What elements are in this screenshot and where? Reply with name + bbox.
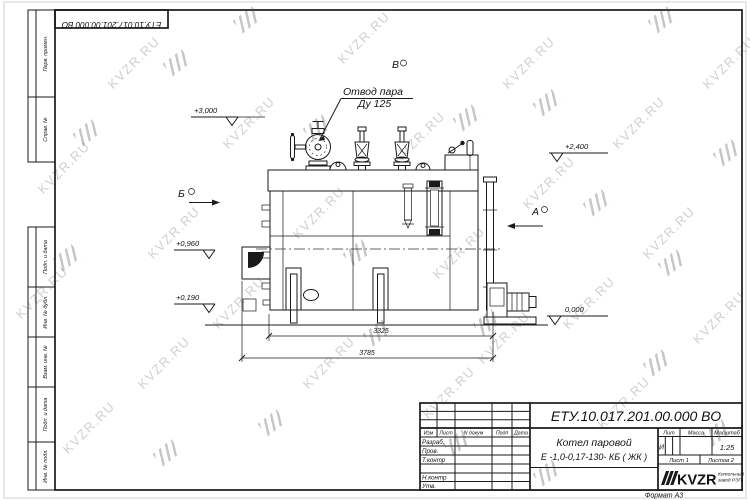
- top-stamp-number: ЕТУ.10.017.201.00.000 ВО: [61, 20, 161, 29]
- margin-label: Инв. № подл.: [43, 449, 49, 482]
- massa-label: Масса: [688, 431, 704, 437]
- lit-label: Лит: [662, 431, 675, 437]
- callout-text-line1: Отвод пара: [343, 86, 403, 98]
- sheets-info: Листов 2: [707, 458, 735, 464]
- dimension-inner: 3325: [373, 328, 389, 335]
- view-label-b: Б: [178, 188, 220, 206]
- dimension-lines: 3325 3785: [239, 281, 496, 362]
- margin-label: Подп. и дата: [43, 240, 49, 274]
- support-legs: [286, 268, 388, 323]
- margin-label: Перв. примен.: [43, 36, 49, 72]
- dimension-outer: 3785: [359, 350, 375, 357]
- steam-valve: [291, 122, 331, 171]
- margin-label: Взам. инв. №: [43, 345, 49, 379]
- elevation-3000: +3,000: [191, 106, 265, 126]
- burner-box: [242, 247, 270, 311]
- title-doc-number: ЕТУ.10.017.201.00.000 ВО: [551, 408, 721, 424]
- callout-text-line2: Ду 125: [357, 98, 391, 110]
- margin-label: Инв. № дубл.: [43, 295, 49, 328]
- sheet-info: Лист 1: [668, 458, 689, 464]
- title-block: ЕТУ.10.017.201.00.000 ВО Котел паровой Е…: [420, 403, 744, 500]
- elevation-0960: +0,960: [174, 239, 215, 259]
- row-razrab: Разраб.: [422, 439, 444, 446]
- row-tkontr: Т.контр: [422, 457, 446, 464]
- col-izm: Изм: [424, 431, 434, 437]
- drum-dome-2: [416, 163, 430, 170]
- margin-label: Справ. №: [43, 117, 49, 142]
- view-label-a: А: [507, 206, 548, 229]
- svg-text:Б: Б: [178, 188, 185, 200]
- svg-text:А: А: [531, 206, 539, 218]
- view-label-v: В: [392, 59, 407, 71]
- row-prov: Пров.: [422, 448, 438, 455]
- svg-text:+0,190: +0,190: [176, 293, 200, 302]
- logo-sub-line1: Котельный: [718, 471, 744, 478]
- product-name-line1: Котел паровой: [556, 437, 631, 449]
- format-label: Формат А3: [645, 493, 683, 500]
- col-data: Дата: [513, 431, 528, 437]
- col-ndoc: N докум: [464, 431, 484, 437]
- callout-steam-outlet: Отвод пара Ду 125: [318, 86, 413, 141]
- margin-label: Подп. и дата: [43, 398, 49, 432]
- safety-valve-2: [394, 127, 410, 170]
- sight-glass: [304, 290, 319, 301]
- water-gauge-column: [425, 181, 444, 235]
- svg-text:0,000: 0,000: [565, 305, 585, 314]
- elevation-0190: +0,190: [174, 293, 215, 313]
- drawing-canvas: ЕТУ.10.017.201.00.000 ВО Перв. примен. С…: [0, 0, 750, 500]
- logo-sub-line2: завод РЭП: [717, 478, 742, 484]
- col-list: Лист: [438, 431, 453, 437]
- rear-fittings: [445, 141, 478, 171]
- drum-dome-1: [330, 162, 346, 170]
- fan-unit: [484, 283, 536, 324]
- col-podp: Подп: [496, 431, 509, 437]
- row-nkontr: Н.контр: [422, 475, 447, 482]
- elevation-0000: 0,000: [547, 305, 608, 325]
- boiler-drum: [268, 170, 478, 191]
- drawing-sheet: ЕТУ.10.017.201.00.000 ВО Перв. примен. С…: [0, 0, 750, 500]
- elevation-2400: +2,400: [549, 142, 608, 162]
- row-utv: Утв.: [421, 483, 436, 490]
- masshtab-label: Масштаб: [714, 431, 741, 437]
- logo-text: KVZR: [677, 473, 717, 489]
- svg-text:+0,960: +0,960: [176, 239, 200, 248]
- product-name-line2: Е -1,0-0,17-130- КБ ( ЖК ): [541, 452, 647, 462]
- safety-valve-1: [354, 127, 370, 170]
- top-stamp: ЕТУ.10.017.201.00.000 ВО: [55, 10, 168, 29]
- boiler-drawing: [205, 122, 548, 326]
- svg-text:+2,400: +2,400: [565, 142, 589, 151]
- scale-value: 1:25: [720, 443, 735, 452]
- svg-text:В: В: [392, 59, 399, 71]
- margin-column: Перв. примен. Справ. № Подп. и дата Инв.…: [28, 10, 55, 490]
- svg-text:+3,000: +3,000: [194, 106, 218, 115]
